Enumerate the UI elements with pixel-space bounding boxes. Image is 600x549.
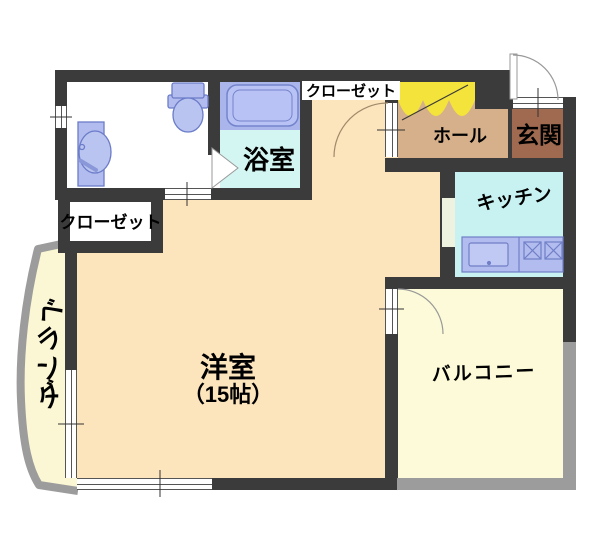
hall-closet-door bbox=[398, 82, 475, 120]
balcony-text: バルコニー bbox=[431, 356, 537, 387]
hall-label: ホール bbox=[428, 123, 492, 147]
entrance-label: 玄関 bbox=[511, 118, 567, 148]
bathroom-text: 浴室 bbox=[243, 140, 295, 177]
western-room-label: 洋室 （15帖） bbox=[138, 350, 318, 410]
bathroom-label: 浴室 bbox=[233, 142, 305, 174]
balcony-door-arc bbox=[398, 289, 443, 334]
entrance-text: 玄関 bbox=[516, 116, 562, 150]
balcony-label: バルコニー bbox=[418, 356, 551, 387]
toilet-icon bbox=[168, 83, 208, 132]
floor-plan: クローゼット クローゼット 浴室 ホール 玄関 キッチン 洋室 （15帖） バル… bbox=[0, 0, 600, 549]
western-room-text: 洋室 bbox=[200, 353, 256, 384]
hall-closet-text: クローゼット bbox=[306, 80, 396, 101]
west-closet-label: クローゼット bbox=[60, 204, 161, 236]
west-closet-text: クローゼット bbox=[60, 208, 162, 233]
fixtures-overlay bbox=[0, 0, 600, 549]
veranda-label: ベランダ bbox=[33, 298, 67, 410]
western-room-size: （15帖） bbox=[183, 383, 273, 407]
washbasin-icon bbox=[78, 122, 111, 186]
hall-text: ホール bbox=[433, 122, 487, 148]
bathtub-icon bbox=[227, 85, 298, 126]
kitchen-counter-icon bbox=[462, 237, 563, 272]
hall-closet-label: クローゼット bbox=[302, 81, 400, 100]
entrance-door bbox=[510, 54, 558, 100]
